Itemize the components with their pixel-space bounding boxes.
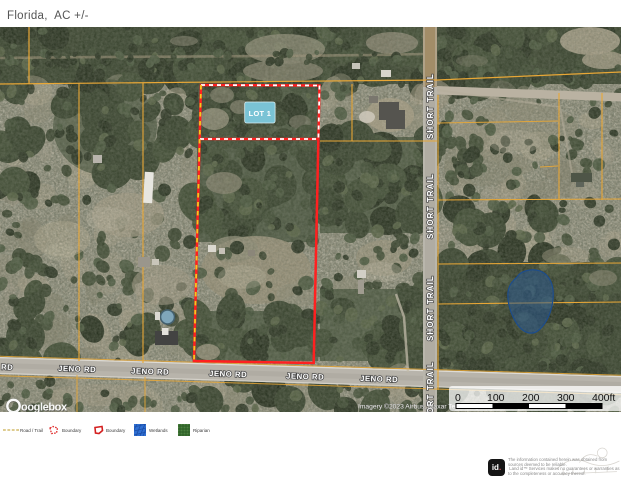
svg-text:JENO RD: JENO RD bbox=[58, 364, 96, 374]
svg-text:JENO RD: JENO RD bbox=[360, 374, 398, 384]
svg-text:SHORT TRAIL: SHORT TRAIL bbox=[426, 173, 435, 239]
svg-text:JENO RD: JENO RD bbox=[286, 372, 324, 382]
svg-text:SHORT TRAIL: SHORT TRAIL bbox=[426, 275, 435, 341]
svg-text:JENO RD: JENO RD bbox=[209, 369, 247, 379]
svg-text:200: 200 bbox=[522, 392, 540, 404]
svg-text:0: 0 bbox=[455, 392, 461, 404]
svg-text:ooglebox: ooglebox bbox=[21, 402, 68, 413]
svg-text:SHORT TRAIL: SHORT TRAIL bbox=[426, 73, 435, 139]
svg-text:LOT 1: LOT 1 bbox=[249, 109, 271, 118]
svg-text:300: 300 bbox=[557, 392, 575, 404]
svg-text:RD: RD bbox=[1, 363, 14, 372]
svg-text:100: 100 bbox=[487, 392, 505, 404]
svg-text:400ft: 400ft bbox=[592, 392, 615, 404]
svg-text:JENO RD: JENO RD bbox=[131, 367, 169, 377]
